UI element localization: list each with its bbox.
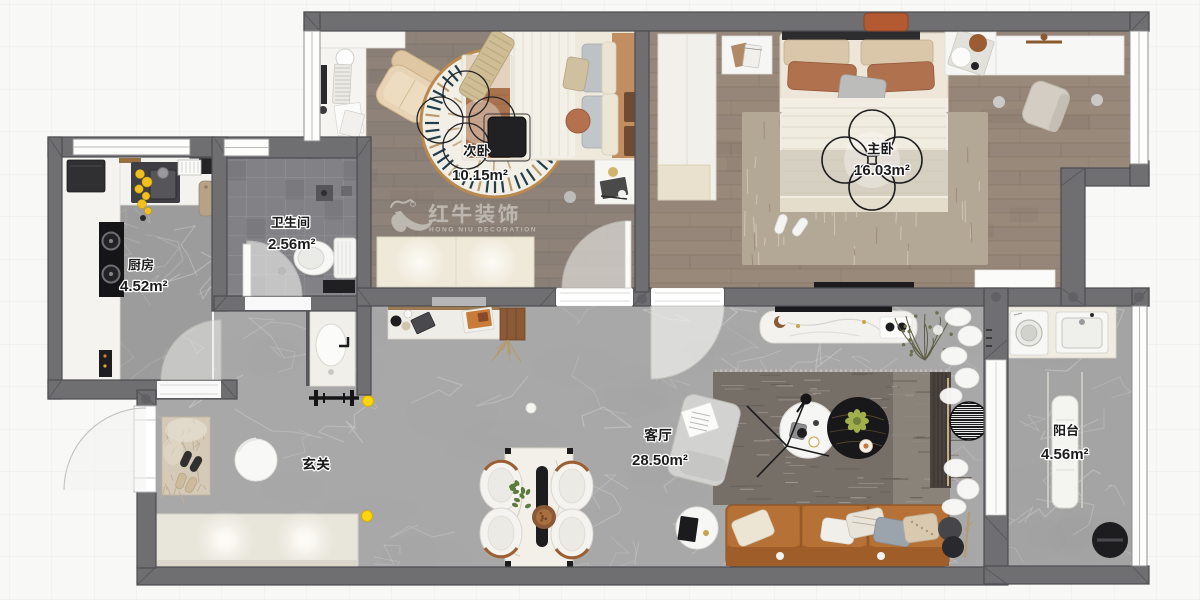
svg-text:16.03m²: 16.03m²: [854, 162, 910, 179]
svg-text:HONG NIU DECORATION: HONG NIU DECORATION: [429, 227, 537, 234]
svg-text:28.50m²: 28.50m²: [632, 452, 688, 469]
svg-text:2.56m²: 2.56m²: [268, 236, 316, 253]
svg-text:10.15m²: 10.15m²: [452, 167, 508, 184]
svg-text:4.52m²: 4.52m²: [120, 278, 168, 295]
svg-text:4.56m²: 4.56m²: [1041, 446, 1089, 463]
